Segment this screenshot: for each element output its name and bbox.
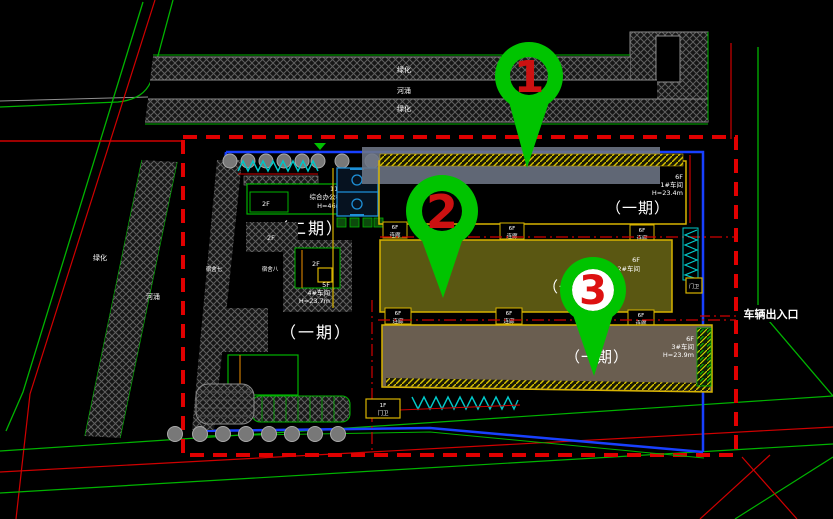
left-greenway-hatch: [85, 160, 177, 438]
workshop3-floors: 6F: [686, 335, 694, 343]
side-gate: 门卫: [686, 278, 702, 293]
svg-text:6F: 6F: [506, 311, 513, 317]
dorm-b-label: 宿舍八: [262, 265, 279, 273]
workshop2-name: 2#车间: [617, 264, 640, 273]
main-gate: 1F 门卫: [366, 399, 400, 418]
svg-text:6F: 6F: [392, 225, 399, 231]
workshop1-phase-label: （一期）: [606, 199, 670, 217]
phase2-area: 2F 11F 综合办公楼 H=46m （二期） 2F 2F 宿舍七 宿舍八 5F…: [168, 143, 384, 442]
f2-label-b: 2F: [312, 260, 320, 268]
workshop4-name: 4#车间: [307, 288, 330, 297]
svg-text:6F: 6F: [638, 313, 645, 319]
svg-text:连廊: 连廊: [389, 231, 401, 239]
dorm-a-label: 宿舍七: [206, 265, 223, 273]
svg-text:连廊: 连廊: [503, 317, 515, 325]
ramp-hatch-upper: [683, 228, 698, 280]
small-trees-row: [337, 218, 383, 227]
vehicle-entrance-label: 车辆出入口: [744, 307, 799, 321]
left-river-label: 河涌: [146, 292, 160, 301]
svg-text:6F: 6F: [639, 228, 646, 234]
cad-site-plan: 绿化 河涌 绿化 河涌 绿化: [0, 0, 833, 519]
top-green-label-1: 绿化: [397, 65, 411, 74]
pin-2-number: 2: [426, 185, 458, 239]
svg-text:连廊: 连廊: [506, 232, 518, 240]
side-gate-label: 门卫: [689, 283, 699, 290]
pin-1-number: 1: [514, 52, 545, 103]
workshop3-building: 6F 3#车间 H=23.9m （一期）: [382, 325, 712, 392]
left-green-label: 绿化: [93, 253, 107, 262]
workshop3-name: 3#车间: [671, 342, 694, 351]
svg-text:6F: 6F: [509, 226, 516, 232]
top-river-label: 河涌: [397, 86, 411, 95]
workshop1-height: H=23.4m: [652, 189, 683, 197]
top-green-label-2: 绿化: [397, 104, 411, 113]
f2-label-a: 2F: [267, 234, 275, 242]
north-marker: [314, 143, 326, 150]
workshop4-height: H=23.7m: [299, 297, 330, 305]
phase2-area-phase1-label: （一期）: [280, 323, 352, 342]
svg-text:连廊: 连廊: [392, 317, 404, 325]
workshop1-name: 1#车间: [660, 180, 683, 189]
pin-3-number: 3: [579, 268, 607, 314]
main-gate-label: 门卫: [377, 409, 389, 417]
annex-2f-label: 2F: [262, 200, 270, 208]
top-river-strip: 绿化 河涌 绿化: [145, 32, 708, 124]
workshop3-height: H=23.9m: [663, 351, 694, 359]
main-gate-floors: 1F: [380, 403, 387, 409]
workshop2-floors: 6F: [632, 256, 640, 264]
parking-row: [252, 396, 350, 422]
svg-text:6F: 6F: [395, 311, 402, 317]
workshop1-floors: 6F: [675, 173, 683, 181]
workshop2-building: 6F 2#车间 （一期）: [380, 240, 672, 312]
